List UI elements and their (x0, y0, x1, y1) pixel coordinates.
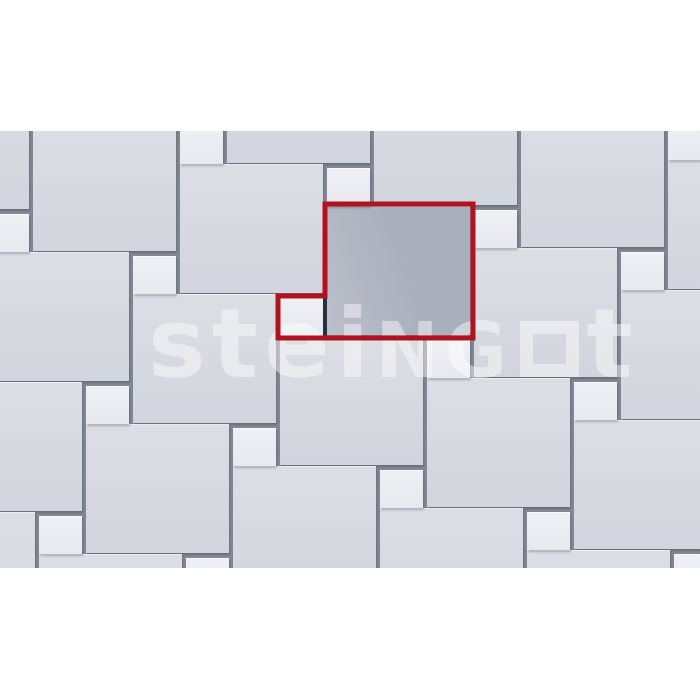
paving-slab-large (133, 294, 276, 423)
product-image: stei NG t (0, 0, 700, 700)
paving-slab-small (180, 131, 223, 164)
paving-slab-large (427, 378, 570, 507)
paving-slab-small (668, 131, 700, 160)
paving-slab-large (374, 131, 517, 205)
paving-slab-small (427, 340, 470, 378)
paving-slab-large (39, 554, 182, 568)
paving-slab-small (186, 558, 229, 568)
paving-slab-large (380, 508, 523, 568)
paving-slab-small (474, 210, 517, 248)
paving-slab-large (0, 382, 82, 511)
paving-slab-large (527, 550, 670, 568)
paving-slab-large (227, 131, 370, 163)
paving-slab-large (33, 131, 176, 251)
paving-slab-large (0, 252, 129, 381)
paving-slab-large (621, 290, 700, 419)
paving-slab-large (280, 336, 423, 465)
paving-slab-large (574, 420, 700, 549)
top-white-band (0, 0, 700, 131)
paving-slab-large (86, 424, 229, 553)
paving-slab-large (0, 131, 29, 209)
paving-slab-large (668, 160, 700, 289)
paving-slab-small (86, 386, 129, 424)
paving-slab-small (133, 256, 176, 294)
paving-slab-small (327, 168, 370, 206)
paving-slab-small (621, 252, 664, 290)
paving-slab-small (233, 428, 276, 466)
highlighted-slab (327, 206, 470, 335)
bottom-white-band (0, 568, 700, 700)
paving-slab-small (674, 554, 700, 568)
paving-slab-large (474, 248, 617, 377)
paving-slab-small (380, 470, 423, 508)
pavement-scheme: stei NG t (0, 131, 700, 568)
paving-slab-small (39, 516, 82, 554)
paving-slab-small (0, 214, 29, 252)
paving-slab-small (280, 298, 323, 336)
paving-slab-large (0, 512, 35, 568)
paving-slab-large (180, 164, 323, 293)
paving-slab-small (527, 512, 570, 550)
paving-slab-large (233, 466, 376, 568)
paving-slab-large (521, 131, 664, 247)
paving-slab-small (574, 382, 617, 420)
